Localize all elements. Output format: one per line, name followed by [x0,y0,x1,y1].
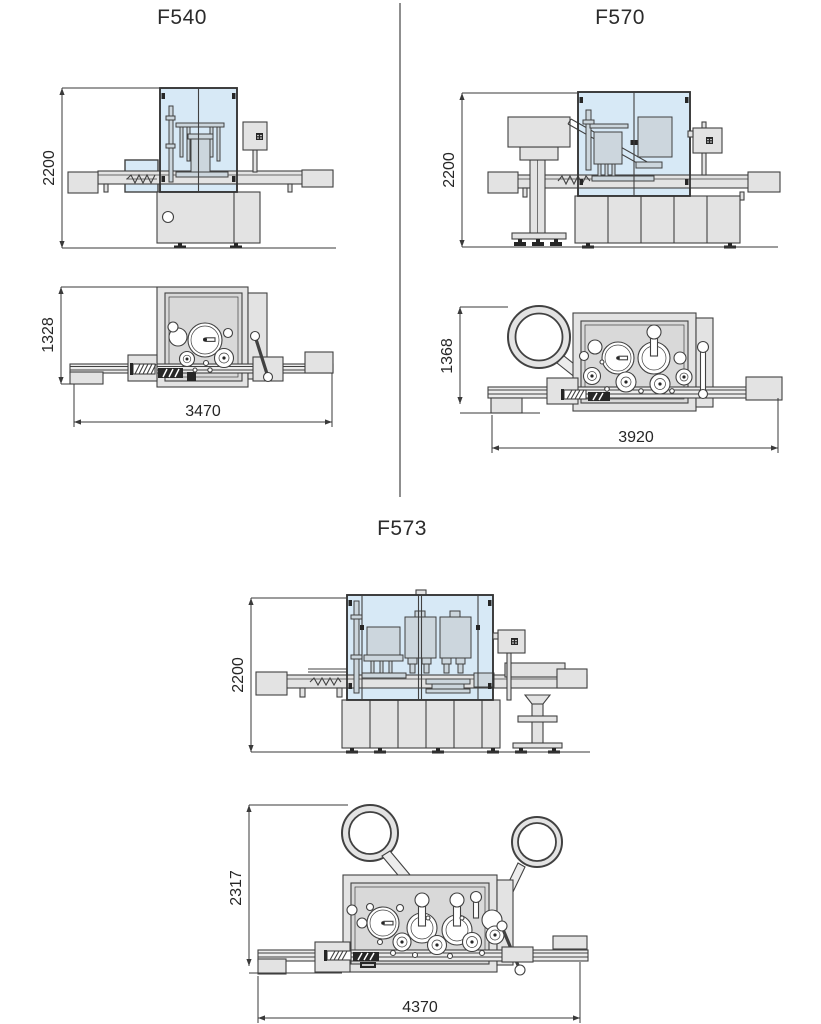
hmi-screen-icon [511,638,518,645]
machine-title-f570: F570 [595,6,645,30]
conveyor [258,950,588,961]
f540-machine-side [68,88,333,249]
f570-top-view-drawing: 1368 3920 [440,290,790,465]
base-cabinet [342,700,500,754]
crimping-unit [588,392,610,401]
f573-depth-label: 2317 [228,870,245,906]
conveyor [70,364,333,373]
infeed-screw [561,389,586,400]
f540-length-label: 3470 [185,403,221,420]
f573-top-view-drawing: 2317 4370 [230,790,610,1024]
f540-top-view-drawing: 1328 3470 [40,273,340,441]
f573-machine-top [258,805,588,975]
control-panel [243,122,267,172]
f540-side-view-drawing: 2200 [40,80,340,255]
f540-depth-label: 1328 [40,317,57,353]
f570-length-label: 3920 [618,429,654,446]
infeed-screw [324,950,351,961]
f570-machine-top [488,306,782,413]
f573-length-label: 4370 [402,999,438,1016]
f573-height-label: 2200 [230,657,247,693]
f570-side-view-drawing: 2200 [440,80,780,255]
hmi-screen-icon [706,137,713,144]
f573-machine-side [256,590,587,754]
f540-height-label: 2200 [41,150,58,186]
control-panel [688,122,722,175]
base-cabinet [575,196,740,249]
outfeed-table [505,663,587,754]
f570-machine-side [488,92,780,249]
f573-side-view-drawing: 2200 [230,585,600,770]
machine-title-f573: F573 [377,517,427,541]
base-cabinet [157,192,260,249]
column-divider-line [399,3,401,497]
f540-machine-top [40,273,333,387]
technical-drawing-sheet: F540 F570 F573 [0,0,821,1024]
machine-title-f540: F540 [157,6,207,30]
f570-height-label: 2200 [441,152,458,188]
f570-depth-label: 1368 [439,338,456,374]
hmi-screen-icon [256,133,263,140]
bowl-feeder-right [512,817,562,867]
